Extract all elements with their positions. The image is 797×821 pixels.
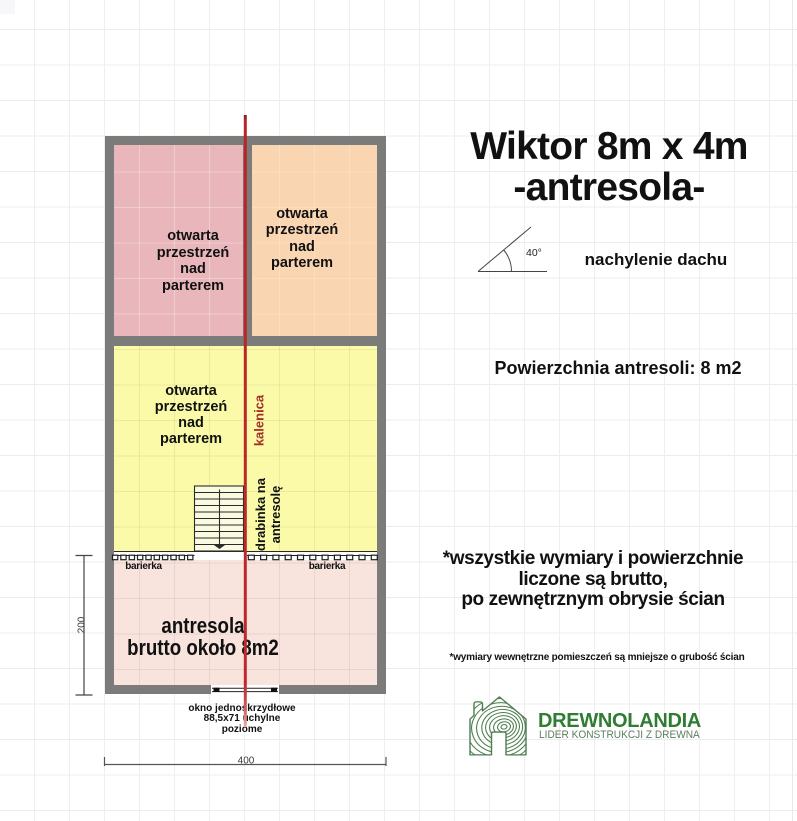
svg-text:200: 200 <box>77 616 88 633</box>
svg-text:400: 400 <box>238 756 255 767</box>
svg-text:40°: 40° <box>526 247 542 259</box>
